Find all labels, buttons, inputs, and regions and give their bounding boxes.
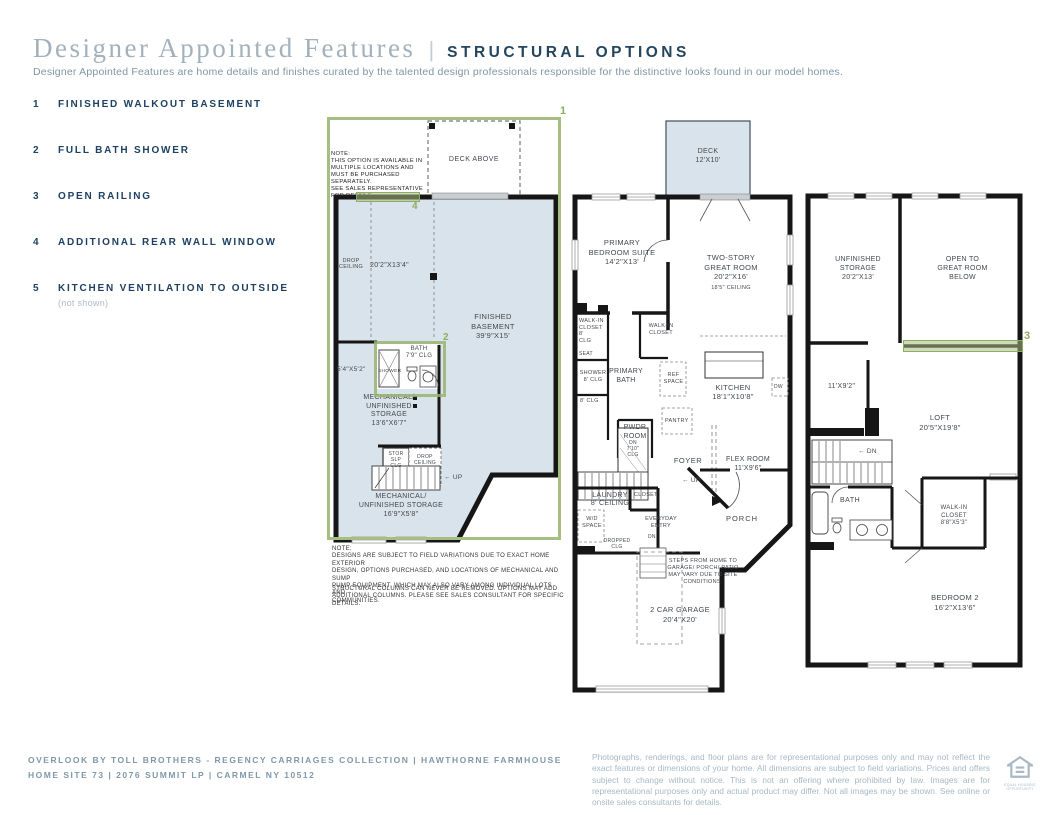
option4-marker: 4 (412, 201, 418, 212)
foyer-label: FOYER (660, 456, 716, 465)
page-description: Designer Appointed Features are home det… (33, 66, 843, 78)
structural-columns-note: STRUCTURAL COLUMNS CAN NEVER BE REMOVED.… (332, 586, 567, 608)
option-item-4: 4 ADDITIONAL REAR WALL WINDOW (33, 237, 277, 248)
option3-railing-highlight (903, 340, 1023, 352)
seat-label: SEAT (579, 351, 593, 357)
option-label: FINISHED WALKOUT BASEMENT (58, 99, 262, 110)
option-item-1: 1 FINISHED WALKOUT BASEMENT (33, 99, 262, 110)
title-structural-options: STRUCTURAL OPTIONS (447, 44, 690, 62)
deck-label: DECK 12'X10' (666, 148, 750, 165)
stor-slp-clg-label: STOR SLP CLG (383, 451, 409, 469)
stair-dn-label: DN 7'10" CLG (620, 440, 646, 458)
basement-bath-dim: 5'4"X5'2" (337, 366, 366, 373)
equal-housing-logo: EQUAL HOUSING OPPORTUNITY (1002, 756, 1038, 791)
great-room-ceiling-label: 18'5" CEILING (685, 285, 777, 291)
option2-bath-highlight (374, 341, 446, 397)
deck-above-label: DECK ABOVE (428, 156, 520, 163)
option2-marker: 2 (443, 332, 449, 343)
walk-in-closet2-label: WALK-IN CLOSET 8'8"X5'3" (926, 505, 982, 528)
primary-bedroom-label: PRIMARY BEDROOM SUITE 14'2"X13' (577, 238, 667, 267)
option-label: OPEN RAILING (58, 191, 152, 202)
footer-disclaimer: Photographs, renderings, and floor plans… (592, 752, 990, 808)
footer-community-info: OVERLOOK BY TOLL BROTHERS - REGENCY CARR… (28, 753, 562, 783)
kitchen-label: KITCHEN 18'1"X10'8" (700, 383, 766, 401)
dw-label: DW (774, 384, 783, 390)
great-room-label: TWO-STORY GREAT ROOM 20'2"X16' (685, 253, 777, 282)
basement-room-dim: 20'2"X13'4" (370, 262, 409, 269)
everyday-entry-label: EVERYDAY ENTRY (638, 516, 684, 529)
drop-ceiling-label: DROP CEILING (337, 258, 365, 270)
option-number: 5 (33, 283, 58, 294)
laundry-label: LAUNDRY 8' CEILING (578, 492, 642, 508)
open-to-below-label: OPEN TO GREAT ROOM BELOW (920, 255, 1005, 282)
page-title: Designer Appointed Features | STRUCTURAL… (33, 33, 690, 64)
dn2-label: DN (648, 534, 656, 540)
title-serif: Designer Appointed Features (33, 33, 415, 64)
option-item-2: 2 FULL BATH SHOWER (33, 145, 190, 156)
dropped-clg-label: DROPPED CLG (596, 538, 638, 550)
flex-room-label: FLEX ROOM 11'X9'6" (715, 455, 781, 473)
option1-marker: 1 (560, 105, 566, 117)
porch-label: PORCH (712, 514, 772, 523)
option-item-5: 5 KITCHEN VENTILATION TO OUTSIDE (33, 283, 289, 294)
bedroom2-label: BEDROOM 2 16'2"X13'6" (900, 593, 1010, 612)
option-number: 1 (33, 99, 58, 110)
mech-storage2-label: MECHANICAL/ UNFINISHED STORAGE 16'9"X5'8… (340, 492, 462, 519)
drop-ceiling2-label: DROP CEILING (409, 454, 441, 466)
option-label: FULL BATH SHOWER (58, 145, 190, 156)
unfinished-storage-label: UNFINISHED STORAGE 20'2"X13' (818, 255, 898, 282)
option3-marker: 3 (1024, 330, 1030, 342)
second-floor-dim-label: 11'X9'2" (828, 383, 855, 390)
loft-label: LOFT 20'5"X19'8" (895, 413, 985, 432)
footer-line2: HOME SITE 73 | 2076 SUMMIT LP | CARMEL N… (28, 768, 562, 783)
first-floor-up-label: ← UP (682, 477, 701, 484)
title-separator: | (428, 37, 434, 63)
equal-housing-caption: EQUAL HOUSING OPPORTUNITY (1002, 783, 1038, 791)
brochure-page: Designer Appointed Features | STRUCTURAL… (0, 0, 1055, 815)
ref-space-label: REF SPACE (660, 372, 687, 385)
second-bath-label: BATH (840, 497, 860, 504)
garage-label: 2 CAR GARAGE 20'4"X20' (620, 605, 740, 624)
basement-up-label: ← UP (444, 474, 463, 481)
option-item-3: 3 OPEN RAILING (33, 191, 152, 202)
equal-housing-house-icon (1007, 756, 1033, 778)
pwdr-room-label: PWDR ROOM (612, 424, 658, 441)
option4-window-highlight (356, 192, 420, 202)
option-number: 4 (33, 237, 58, 248)
closet-label: CLOSET (634, 492, 658, 498)
option-label: KITCHEN VENTILATION TO OUTSIDE (58, 283, 289, 294)
pantry-label: PANTRY (665, 418, 689, 424)
steps-note: STEPS FROM HOME TO GARAGE/ PORCH/ PATIO … (655, 558, 751, 586)
wd-space-label: W/D SPACE (580, 516, 604, 529)
option-not-shown-note: (not shown) (58, 298, 108, 308)
option-number: 2 (33, 145, 58, 156)
finished-basement-label: FINISHED BASEMENT 39'9"X15' (447, 312, 539, 341)
walk-in-closet-right-label: WALK-IN CLOSET (638, 323, 684, 336)
option-number: 3 (33, 191, 58, 202)
option-label: ADDITIONAL REAR WALL WINDOW (58, 237, 277, 248)
primary-bath-label: PRIMARY BATH (600, 368, 652, 385)
walk-in-closet-left-label: WALK-IN CLOSET 8' CLG (579, 318, 621, 344)
wc-clg-label: 8' CLG (580, 398, 599, 404)
footer-line1: OVERLOOK BY TOLL BROTHERS - REGENCY CARR… (28, 753, 562, 768)
mech-storage1-label: MECHANICAL/ UNFINISHED STORAGE 13'6"X6'7… (343, 394, 435, 428)
second-floor-dn-label: ← DN (858, 448, 877, 455)
